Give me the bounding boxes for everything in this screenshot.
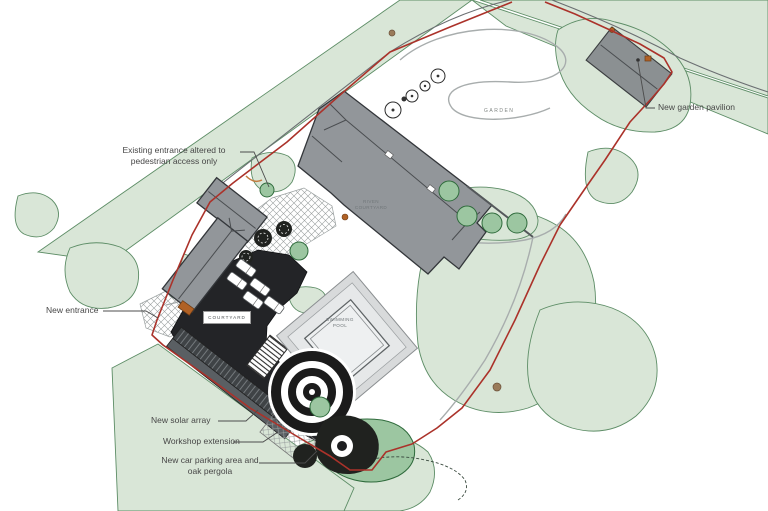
area-label-riven-courtyard: RIVEN COURTYARD xyxy=(348,199,394,211)
area-label-courtyard: COURTYARD xyxy=(203,311,251,324)
label-garden-pavilion: New garden pavilion xyxy=(658,102,735,113)
label-workshop-extension: Workshop extension xyxy=(163,436,240,447)
label-existing-entrance-line1: Existing entrance altered to xyxy=(122,145,225,155)
area-label-riven-line1: RIVEN xyxy=(363,199,379,204)
top-left-vegetation xyxy=(15,193,58,237)
site-plan: Existing entrance altered to pedestrian … xyxy=(0,0,768,511)
area-label-riven-line2: COURTYARD xyxy=(355,205,387,210)
label-car-parking-line2: oak pergola xyxy=(188,466,232,476)
label-existing-entrance-line2: pedestrian access only xyxy=(131,156,217,166)
label-car-parking: New car parking area and oak pergola xyxy=(145,455,275,476)
site-plan-drawing xyxy=(0,0,768,511)
tree-green xyxy=(310,397,330,417)
label-new-solar-array: New solar array xyxy=(151,415,211,426)
right-canopy-lower xyxy=(528,302,658,431)
serpentine-path xyxy=(400,29,566,119)
left-vegetation-blob xyxy=(65,243,139,309)
area-label-pool-line1: SWIMMING xyxy=(326,317,354,322)
area-label-garden: GARDEN xyxy=(484,108,514,114)
label-car-parking-line1: New car parking area and xyxy=(161,455,258,465)
main-house xyxy=(298,91,492,274)
area-label-swimming-pool: SWIMMING POOL xyxy=(318,317,362,329)
label-existing-entrance: Existing entrance altered to pedestrian … xyxy=(108,145,240,166)
label-new-entrance: New entrance xyxy=(46,305,98,316)
area-label-pool-line2: POOL xyxy=(333,323,347,328)
